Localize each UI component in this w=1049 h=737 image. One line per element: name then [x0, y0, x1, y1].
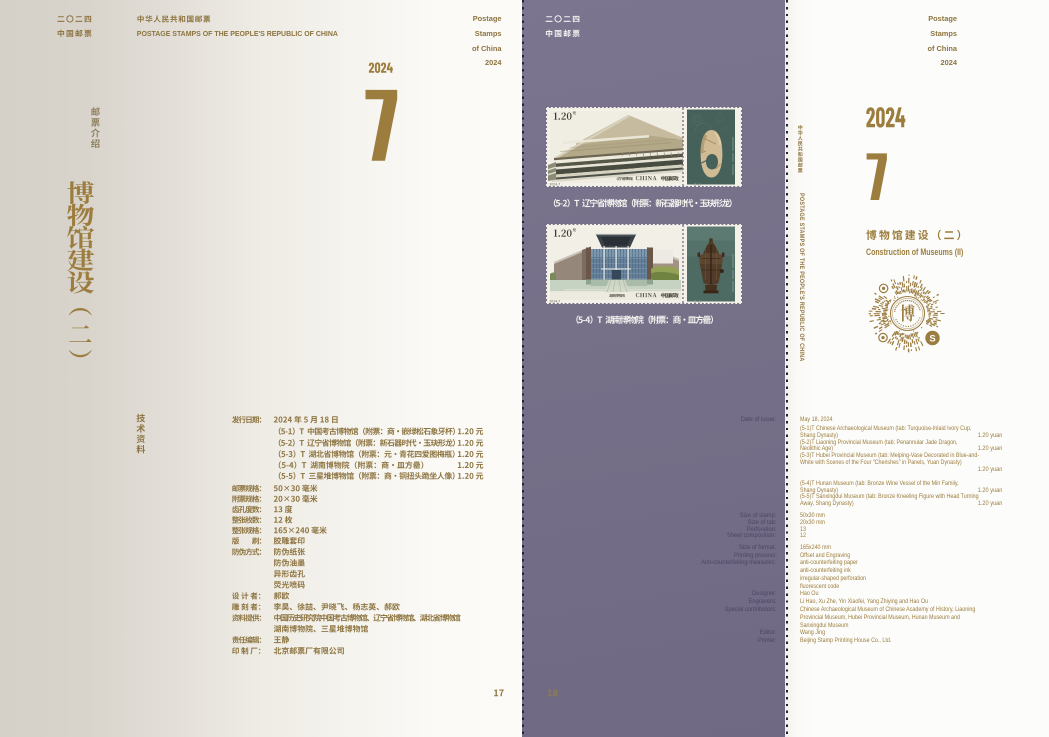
svg-text:S: S: [929, 333, 935, 344]
